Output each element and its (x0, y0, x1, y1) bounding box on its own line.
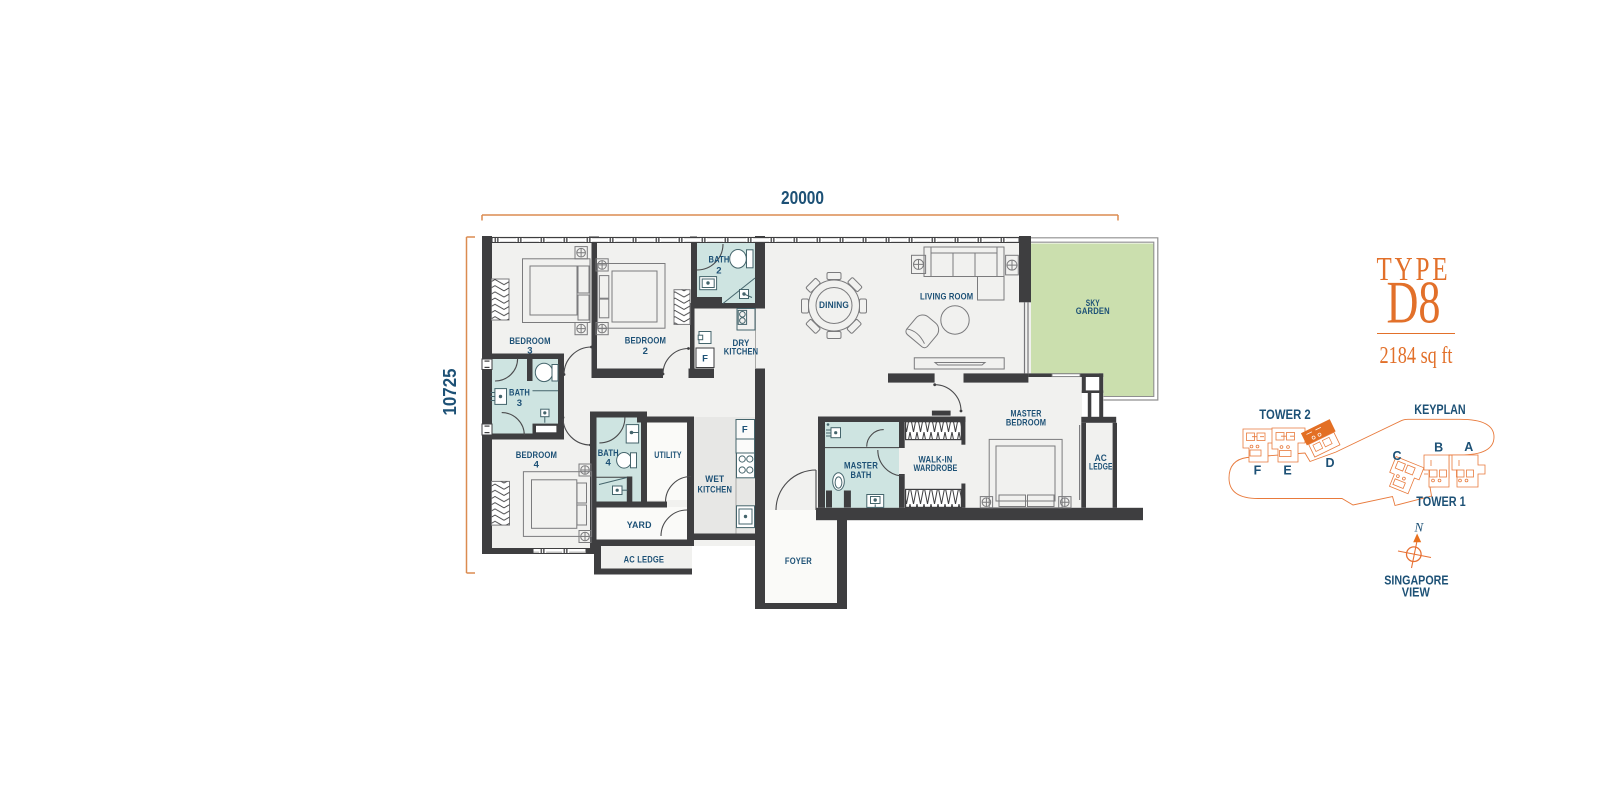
svg-text:20000: 20000 (781, 188, 824, 208)
svg-text:F: F (1254, 464, 1262, 478)
svg-text:BEDROOM: BEDROOM (625, 336, 666, 347)
svg-text:B: B (1434, 441, 1443, 455)
svg-text:2184 sq ft: 2184 sq ft (1380, 343, 1453, 369)
svg-text:YARD: YARD (627, 520, 652, 531)
svg-text:A: A (1464, 440, 1473, 454)
svg-text:BATH: BATH (509, 388, 530, 399)
svg-text:BATH: BATH (709, 255, 730, 266)
svg-text:2: 2 (716, 266, 721, 277)
svg-text:LIVING ROOM: LIVING ROOM (920, 292, 973, 303)
svg-text:DINING: DINING (819, 300, 849, 311)
svg-text:10725: 10725 (440, 369, 460, 416)
svg-text:C: C (1392, 449, 1401, 463)
svg-text:D8: D8 (1387, 270, 1441, 336)
svg-text:VIEW: VIEW (1402, 585, 1431, 600)
svg-text:4: 4 (534, 460, 540, 471)
svg-text:GARDEN: GARDEN (1076, 306, 1110, 317)
svg-text:F: F (702, 354, 708, 365)
svg-text:KITCHEN: KITCHEN (698, 485, 733, 496)
svg-text:WARDROBE: WARDROBE (914, 463, 958, 474)
svg-text:TOWER 2: TOWER 2 (1259, 407, 1310, 422)
svg-text:TOWER 1: TOWER 1 (1416, 494, 1466, 509)
svg-text:WET: WET (705, 474, 724, 485)
svg-text:E: E (1283, 464, 1291, 478)
svg-text:2: 2 (643, 346, 648, 357)
svg-text:AC LEDGE: AC LEDGE (624, 555, 665, 566)
svg-text:N: N (1413, 520, 1424, 535)
svg-text:D: D (1325, 456, 1334, 470)
svg-text:BATH: BATH (851, 470, 872, 481)
svg-text:FOYER: FOYER (785, 556, 812, 567)
svg-text:BEDROOM: BEDROOM (1006, 418, 1046, 429)
svg-text:UTILITY: UTILITY (654, 450, 682, 461)
svg-text:3: 3 (517, 398, 522, 409)
svg-text:KEYPLAN: KEYPLAN (1414, 402, 1465, 417)
svg-text:3: 3 (527, 346, 532, 357)
svg-text:KITCHEN: KITCHEN (724, 347, 759, 358)
svg-text:F: F (742, 425, 748, 436)
svg-text:4: 4 (605, 458, 611, 469)
svg-text:LEDGE: LEDGE (1089, 462, 1113, 473)
